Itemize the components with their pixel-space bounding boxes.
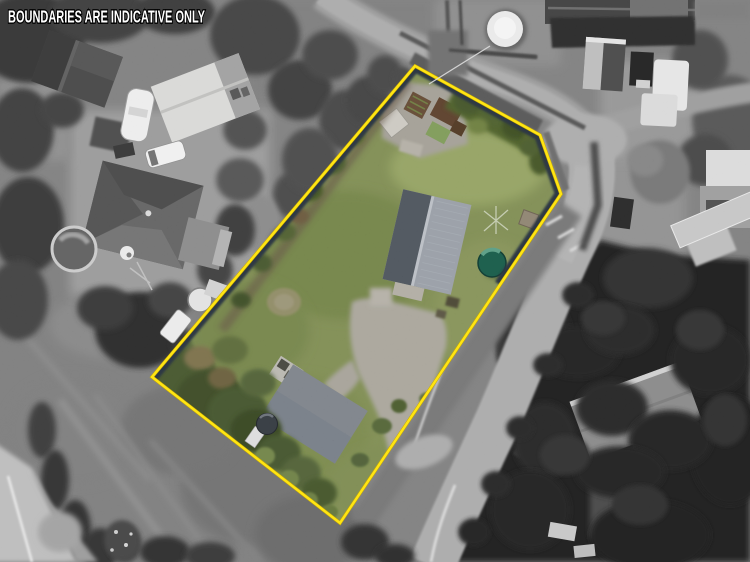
svg-text:BOUNDARIES ARE INDICATIVE ONLY: BOUNDARIES ARE INDICATIVE ONLY — [8, 7, 205, 27]
